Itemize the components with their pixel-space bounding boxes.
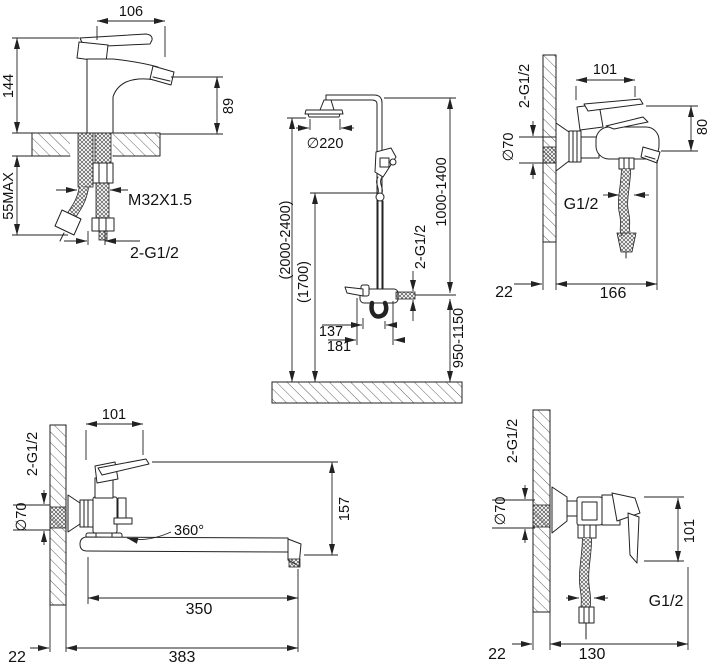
hose-ball-joint xyxy=(376,193,384,201)
dim-reach: 166 xyxy=(600,285,627,302)
dim-inlet-thread: 2-G1/2 xyxy=(25,432,41,476)
dim-escutcheon: ∅70 xyxy=(14,503,30,532)
mixer-lever xyxy=(98,459,149,475)
dim-total-height: 144 xyxy=(1,74,17,98)
dim-spout-height: 89 xyxy=(221,98,237,114)
spout-aerator xyxy=(289,559,300,567)
dim-spout-offset: 137 xyxy=(319,324,343,340)
dim-height: 157 xyxy=(337,497,353,521)
dim-column-inlet-thread: 2-G1/2 xyxy=(413,225,429,269)
valve-body xyxy=(577,497,602,525)
bath-mixer-outline xyxy=(543,55,660,258)
in-wall-connector xyxy=(543,147,556,163)
faucet-aerator xyxy=(150,66,174,85)
dim-body-width: 101 xyxy=(593,62,617,78)
slider-bracket xyxy=(380,158,389,167)
long-spout xyxy=(80,537,288,552)
dim-riser-range: 1000-1400 xyxy=(434,157,450,226)
dim-body-height: 80 xyxy=(695,119,711,135)
dim-hose-thread: G1/2 xyxy=(649,593,684,610)
dim-mixer-height: 950-1150 xyxy=(451,308,467,368)
dim-wall-gap: 22 xyxy=(488,646,506,663)
mount-nut xyxy=(93,163,113,183)
head-stem xyxy=(320,100,334,110)
dim-swivel-angle: 360° xyxy=(174,523,204,539)
technical-drawing-canvas: 106 144 89 55MAX M32X1.5 2-G1/2 xyxy=(0,0,712,665)
right-supply-hose xyxy=(92,183,114,240)
escutcheon xyxy=(552,487,567,533)
valve-lever xyxy=(628,513,639,563)
dim-handshower-height: (1700) xyxy=(296,261,312,303)
dim-hose-thread: 2-G1/2 xyxy=(130,245,179,262)
shower-hose xyxy=(617,158,636,258)
shower-column-dimensions: ∅220 (2000-2400) (1700) 1000-1400 950-11… xyxy=(278,98,467,382)
dim-inlet-thread: 2-G1/2 xyxy=(517,64,533,108)
dim-reach: 130 xyxy=(579,646,606,663)
dim-escutcheon: ∅70 xyxy=(501,133,517,162)
dim-total-reach: 383 xyxy=(169,649,196,665)
mount-stud xyxy=(95,133,111,163)
shower-hose xyxy=(578,525,596,639)
dim-body-width: 101 xyxy=(102,407,126,423)
mixer-body xyxy=(93,497,117,533)
dim-escutcheon: ∅70 xyxy=(493,497,509,526)
dim-hose-thread: G1/2 xyxy=(564,196,599,213)
dim-mount-thread: M32X1.5 xyxy=(128,192,192,209)
dim-body-height: 101 xyxy=(682,519,698,543)
shower-valve-dimensions: 2-G1/2 ∅70 101 G1/2 22 130 xyxy=(488,419,698,663)
dim-total-offset: 181 xyxy=(327,339,351,355)
in-wall-connector xyxy=(533,505,550,527)
shower-valve-outline xyxy=(533,410,640,650)
bath-mixer-dimensions: 101 2-G1/2 ∅70 80 G1/2 22 166 xyxy=(495,62,711,302)
column-spout xyxy=(372,303,387,316)
dim-column-total-height: (2000-2400) xyxy=(278,201,294,280)
dim-spout-length: 350 xyxy=(186,601,213,618)
shower-valve-drawing: 2-G1/2 ∅70 101 G1/2 22 130 xyxy=(488,410,698,663)
dim-spout-width: 106 xyxy=(119,4,143,20)
shower-column-drawing: ∅220 (2000-2400) (1700) 1000-1400 950-11… xyxy=(272,95,467,403)
dim-wall-gap: 22 xyxy=(8,649,26,665)
dim-max-deck: 55MAX xyxy=(1,172,17,220)
basin-faucet-drawing: 106 144 89 55MAX M32X1.5 2-G1/2 xyxy=(1,4,237,262)
shower-column-outline xyxy=(272,95,462,403)
inlet-nipple xyxy=(396,292,415,299)
escutcheon xyxy=(556,123,569,171)
in-wall-connector xyxy=(50,507,66,528)
dim-inlet-thread: 2-G1/2 xyxy=(505,419,521,463)
faucet-body xyxy=(87,59,158,133)
dim-head-diameter: ∅220 xyxy=(307,136,344,152)
riser-pipe xyxy=(326,95,382,289)
column-mixer-lever xyxy=(345,287,363,296)
dim-wall-gap: 22 xyxy=(495,284,513,301)
long-spout-mixer-drawing: 101 2-G1/2 ∅70 360° 157 350 22 383 xyxy=(8,407,353,665)
overhead-shower xyxy=(305,110,343,114)
escutcheon xyxy=(68,495,80,532)
floor xyxy=(272,382,462,403)
left-supply-hose xyxy=(55,187,84,241)
mixer-lever xyxy=(584,99,643,111)
bath-mixer-drawing: 101 2-G1/2 ∅70 80 G1/2 22 166 xyxy=(495,55,711,302)
hose-bundle xyxy=(78,133,93,187)
basin-faucet-outline xyxy=(32,34,174,241)
